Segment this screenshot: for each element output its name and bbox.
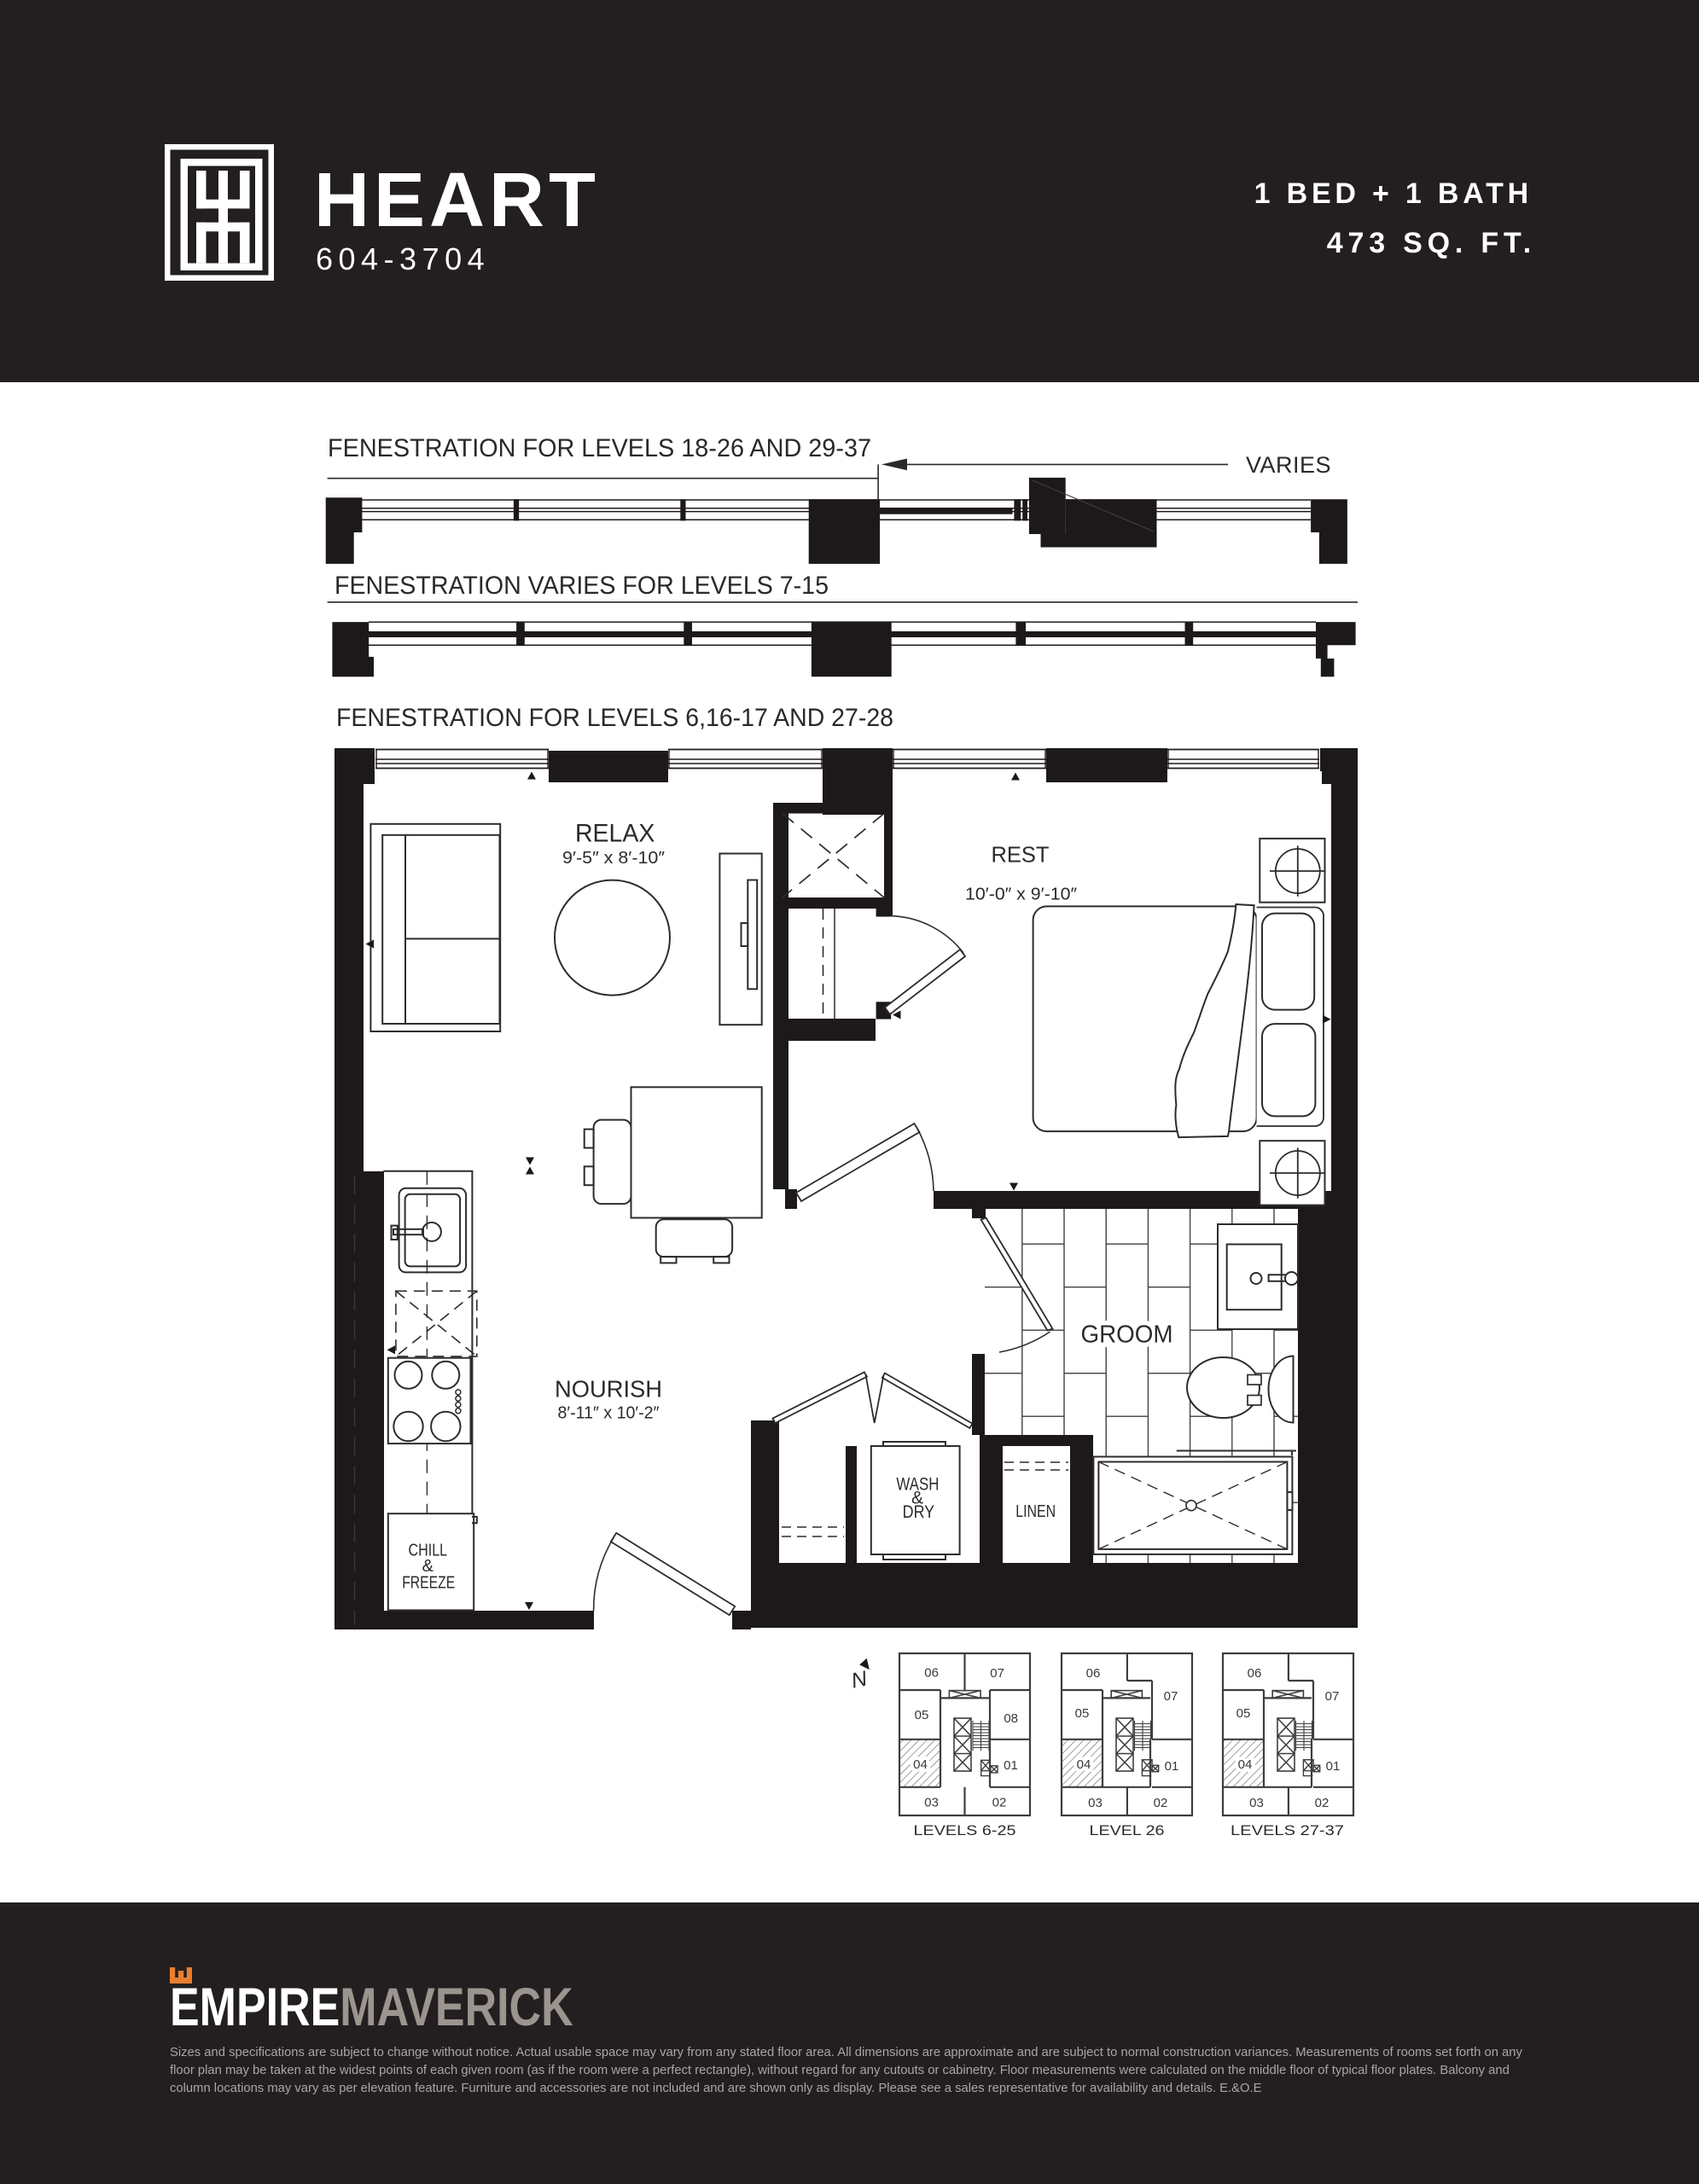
svg-text:REST: REST [992, 842, 1050, 868]
svg-text:473 SQ. FT.: 473 SQ. FT. [1327, 227, 1536, 259]
svg-text:LEVELS 27-37: LEVELS 27-37 [1231, 1823, 1344, 1838]
svg-text:06: 06 [1248, 1666, 1262, 1681]
svg-text:01: 01 [1326, 1759, 1341, 1774]
svg-text:05: 05 [915, 1708, 929, 1722]
svg-text:FREEZE: FREEZE [402, 1574, 455, 1593]
svg-text:02: 02 [1315, 1796, 1330, 1810]
svg-text:08: 08 [1004, 1711, 1018, 1726]
svg-text:06: 06 [924, 1665, 939, 1680]
svg-text:05: 05 [1075, 1706, 1090, 1721]
svg-text:02: 02 [992, 1796, 1007, 1810]
svg-text:1 BED + 1 BATH: 1 BED + 1 BATH [1254, 177, 1533, 210]
svg-text:04: 04 [913, 1757, 928, 1772]
svg-text:01: 01 [1165, 1759, 1179, 1774]
svg-text:FENESTRATION FOR LEVELS 18-26: FENESTRATION FOR LEVELS 18-26 AND 29-37 [328, 434, 871, 462]
svg-text:EMPIREMAVERICK: EMPIREMAVERICK [170, 1978, 573, 2037]
svg-text:8′-11″ x 10′-2″: 8′-11″ x 10′-2″ [558, 1404, 660, 1423]
svg-text:07: 07 [990, 1666, 1004, 1681]
svg-text:03: 03 [1088, 1796, 1103, 1810]
svg-text:LEVELS 6-25: LEVELS 6-25 [914, 1823, 1016, 1838]
svg-text:9′-5″ x 8′-10″: 9′-5″ x 8′-10″ [562, 848, 665, 868]
svg-text:column locations may vary as p: column locations may vary as per elevati… [170, 2082, 1262, 2095]
svg-text:04: 04 [1238, 1757, 1253, 1772]
svg-text:04: 04 [1077, 1757, 1091, 1772]
svg-text:DRY: DRY [903, 1502, 935, 1522]
svg-text:01: 01 [1004, 1758, 1018, 1773]
svg-text:FENESTRATION FOR LEVELS 6,16-1: FENESTRATION FOR LEVELS 6,16-17 AND 27-2… [336, 704, 893, 732]
svg-text:07: 07 [1325, 1689, 1340, 1704]
svg-text:03: 03 [1249, 1796, 1264, 1810]
svg-text:LINEN: LINEN [1015, 1501, 1056, 1521]
svg-text:07: 07 [1164, 1689, 1178, 1704]
svg-text:HEART: HEART [314, 158, 600, 243]
svg-text:06: 06 [1086, 1666, 1101, 1681]
svg-text:FENESTRATION VARIES FOR LEVELS: FENESTRATION VARIES FOR LEVELS 7-15 [335, 572, 829, 600]
svg-text:02: 02 [1154, 1796, 1168, 1810]
svg-text:Sizes and specifications are s: Sizes and specifications are subject to … [170, 2046, 1523, 2059]
svg-text:10′-0″ x 9′-10″: 10′-0″ x 9′-10″ [965, 885, 1077, 904]
svg-text:VARIES: VARIES [1246, 452, 1331, 478]
svg-text:RELAX: RELAX [575, 820, 655, 848]
svg-text:GROOM: GROOM [1081, 1321, 1173, 1349]
svg-text:604-3704: 604-3704 [316, 241, 490, 276]
svg-text:floor plan may be taken at the: floor plan may be taken at the widest po… [170, 2064, 1510, 2077]
svg-text:03: 03 [924, 1796, 939, 1810]
svg-text:NOURISH: NOURISH [555, 1376, 662, 1403]
svg-text:LEVEL 26: LEVEL 26 [1090, 1823, 1165, 1838]
svg-text:05: 05 [1236, 1706, 1251, 1721]
